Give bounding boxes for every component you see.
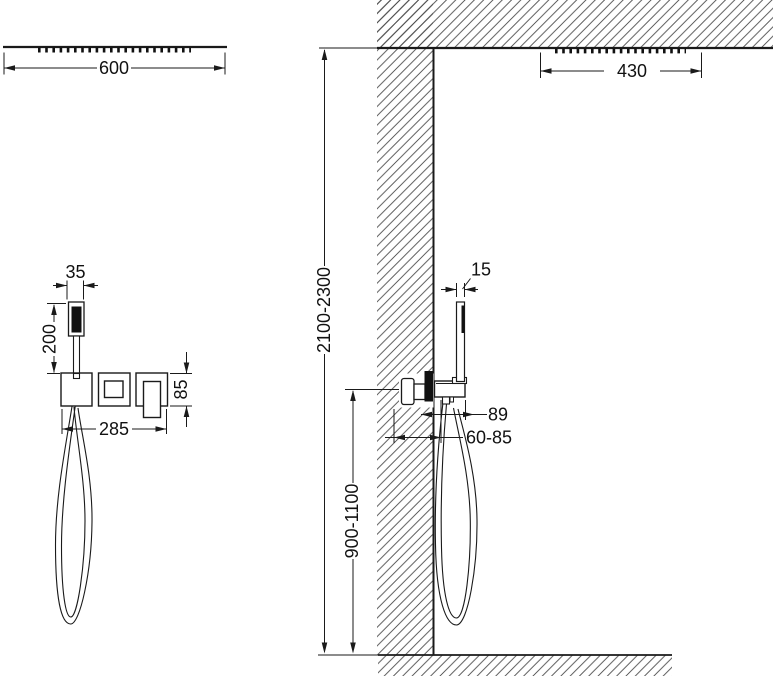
dim-label-60-85: 60-85 xyxy=(466,428,512,448)
arrowhead xyxy=(4,65,15,71)
dim-label-600: 600 xyxy=(99,58,129,78)
arrowhead xyxy=(350,643,356,654)
arrowhead xyxy=(214,65,225,71)
arrowhead xyxy=(84,283,95,289)
arrowhead xyxy=(541,68,552,74)
arrowhead xyxy=(350,390,356,401)
arrowhead xyxy=(184,363,190,374)
dim-label-900-1100: 900-1100 xyxy=(342,484,362,559)
handshower-face xyxy=(72,307,82,333)
handshower-face-side xyxy=(462,306,465,334)
handshower-front-view xyxy=(56,302,93,624)
floor-hatch xyxy=(378,655,672,676)
front-view: 600 xyxy=(3,47,227,624)
mixer-wall-ring xyxy=(425,371,434,402)
arrowhead xyxy=(322,643,328,654)
mixer-lever xyxy=(144,382,161,418)
hose-outlet-side xyxy=(443,397,450,404)
dim-label-35: 35 xyxy=(65,262,85,282)
dim-label-2100-2300: 2100-2300 xyxy=(314,267,334,353)
hose-outlet-nut xyxy=(450,397,454,402)
mixer-front-view xyxy=(61,373,168,418)
arrowhead xyxy=(184,406,190,417)
arrowhead xyxy=(465,287,476,293)
shower-hose-front-outer xyxy=(56,402,93,625)
handshower-handle-overlap xyxy=(74,374,80,379)
arrowhead xyxy=(56,283,67,289)
arrowhead xyxy=(446,287,457,293)
arrowhead xyxy=(322,49,328,60)
dim-label-89: 89 xyxy=(488,405,508,425)
dim-label-430: 430 xyxy=(617,61,647,81)
dim-label-200: 200 xyxy=(40,324,60,354)
dim-label-285: 285 xyxy=(99,419,129,439)
arrowhead xyxy=(691,68,702,74)
mixer-stem-side xyxy=(414,384,425,400)
dim-label-85: 85 xyxy=(171,379,191,399)
dimension-handshower-depth xyxy=(441,279,478,298)
ceiling-hatch xyxy=(377,0,773,48)
arrowhead xyxy=(51,362,57,373)
installation-drawing-page: 430 2100-2300 900-1100 xyxy=(0,0,773,676)
side-view: 430 2100-2300 900-1100 xyxy=(314,0,773,676)
installation-drawing: 430 2100-2300 900-1100 xyxy=(0,0,773,676)
dim-label-15: 15 xyxy=(471,260,491,280)
mixer-handle-side xyxy=(402,379,415,405)
arrowhead xyxy=(51,304,57,315)
diverter-knob xyxy=(105,381,124,398)
arrowhead xyxy=(463,412,474,418)
dimension-handshower-width xyxy=(53,281,98,300)
handshower-handle xyxy=(74,336,80,379)
shower-hose-front-inner xyxy=(62,402,86,617)
wall-hatch xyxy=(377,0,433,655)
arrowhead xyxy=(156,426,167,432)
